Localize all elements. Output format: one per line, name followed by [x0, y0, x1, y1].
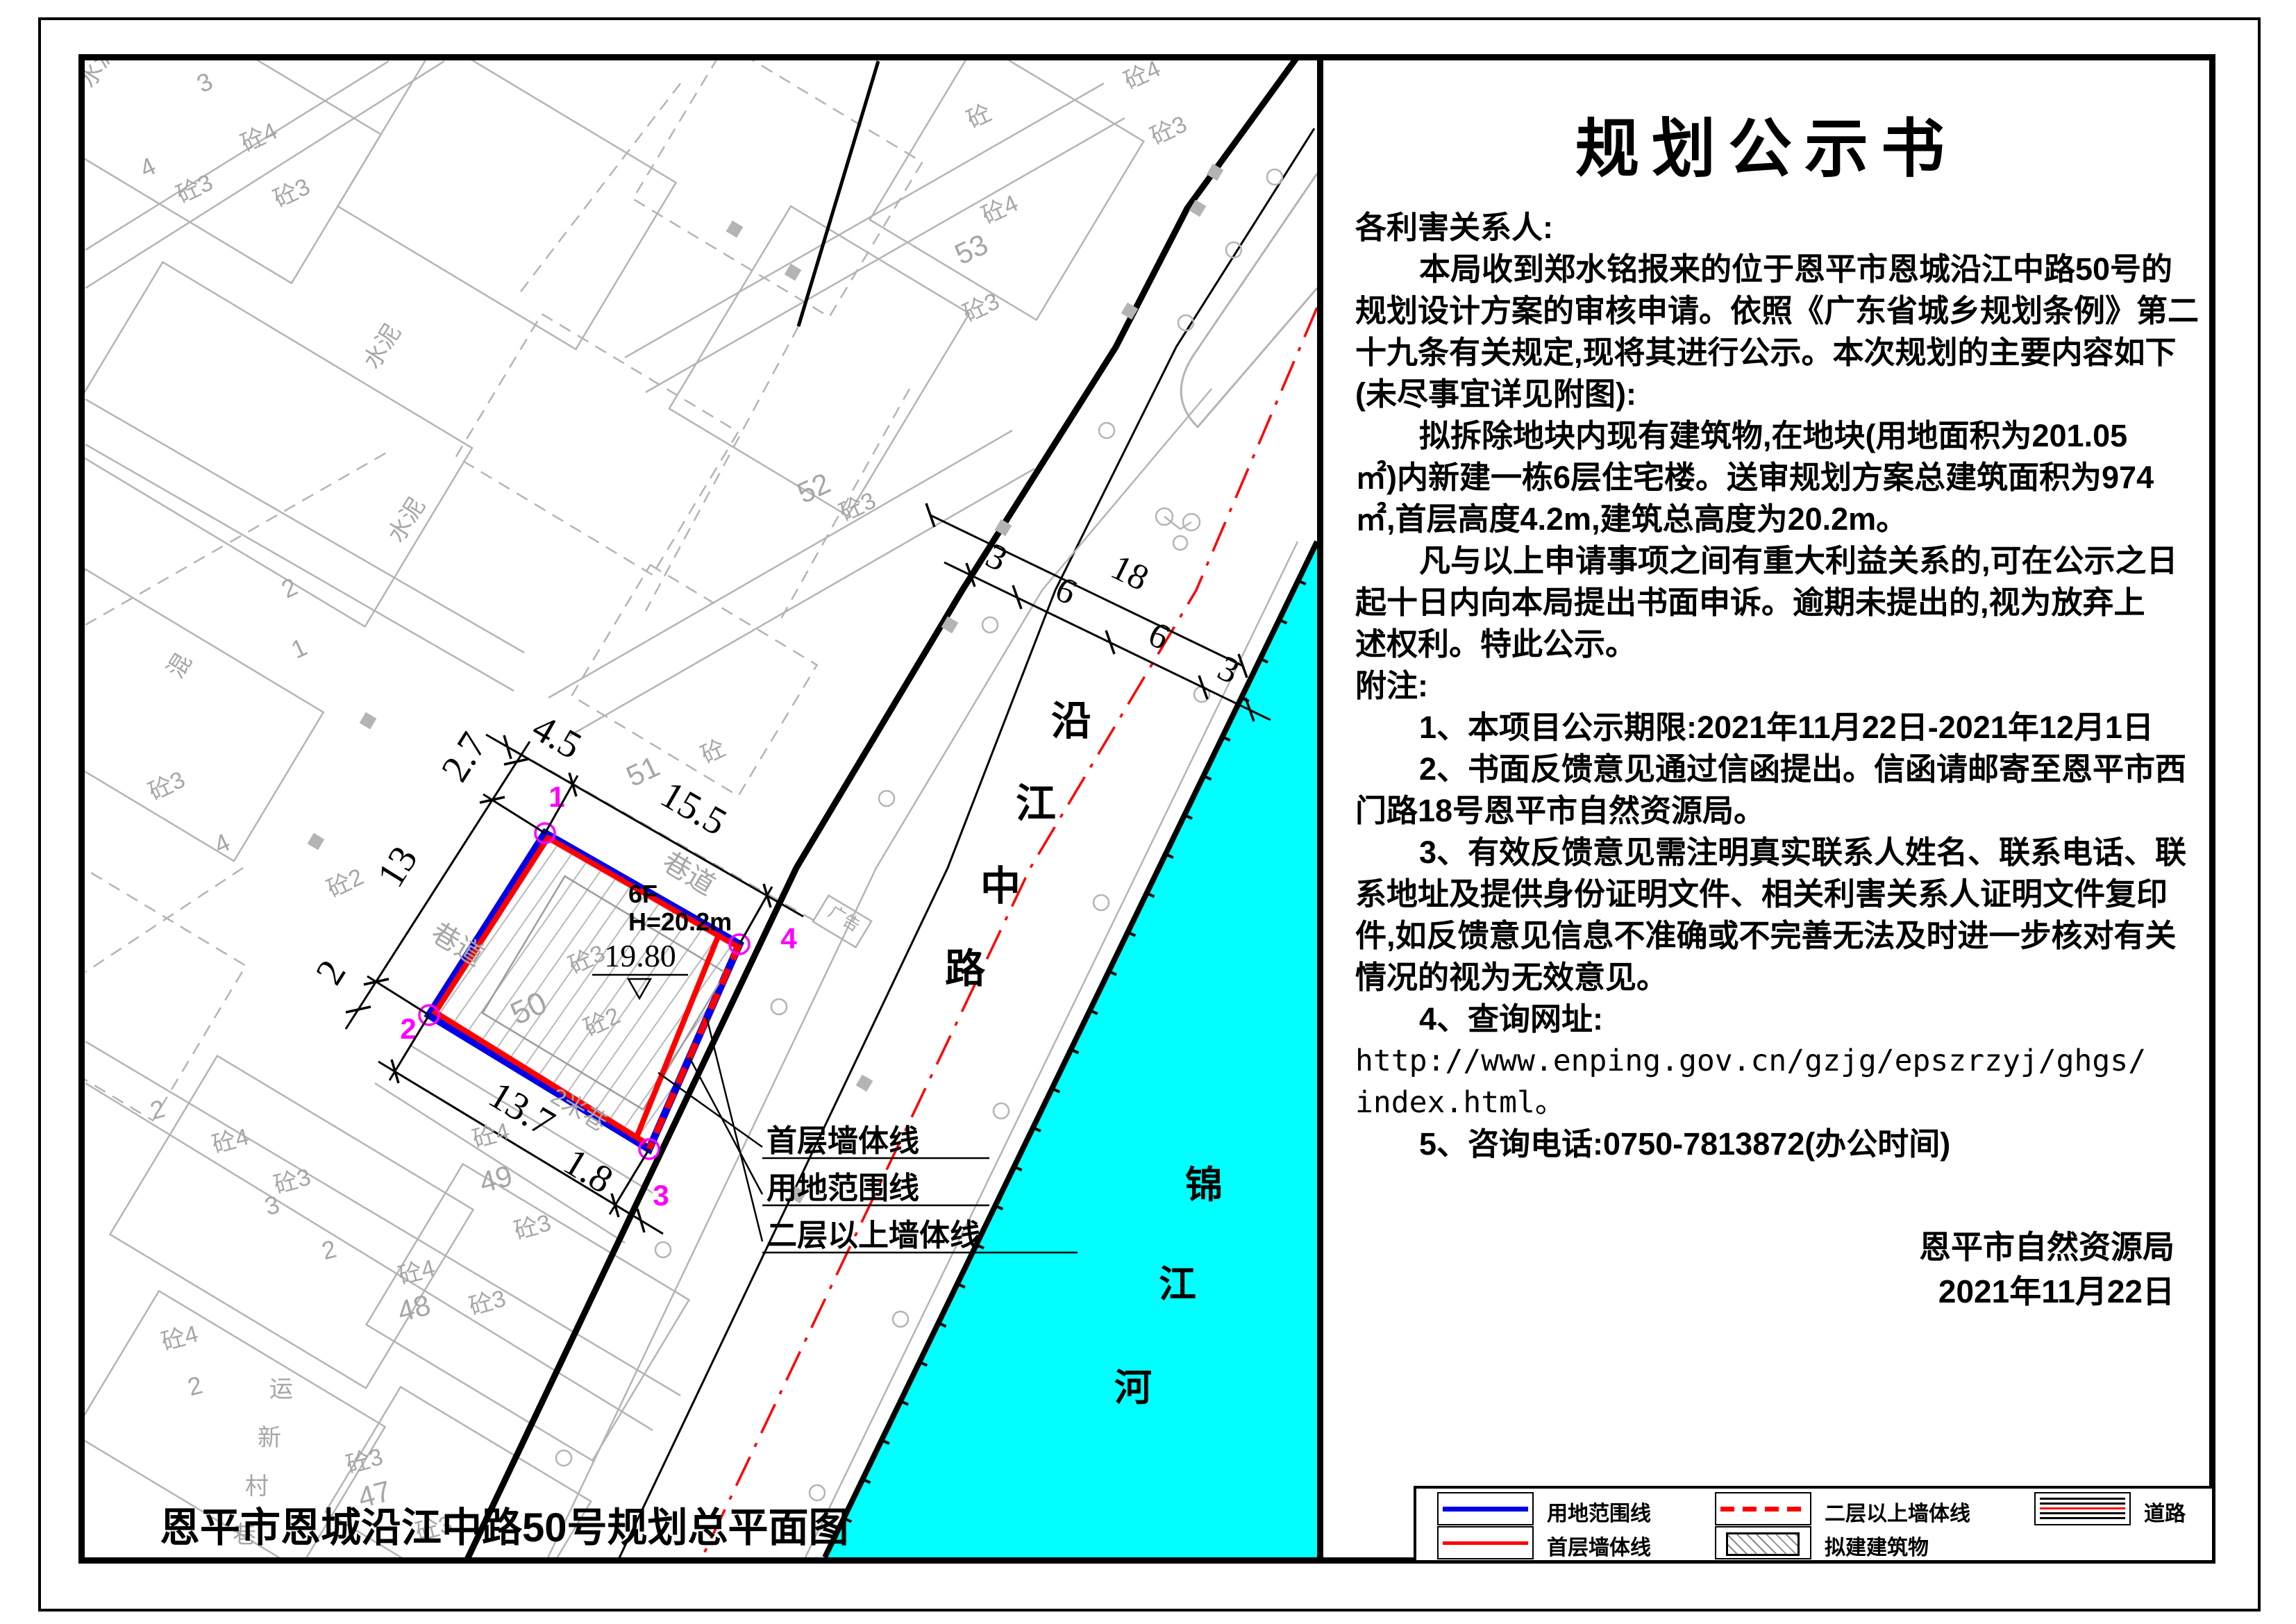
cadastral-label: 砼 — [697, 735, 730, 769]
cadastral-label: 混 — [162, 649, 197, 683]
body-line: 凡与以上申请事项之间有重大利益关系的,可在公示之日 — [1355, 540, 2201, 582]
dim-tick — [504, 735, 511, 759]
svg-text:沿: 沿 — [1051, 698, 1091, 744]
road-name: 沿 江 中 路 — [945, 698, 1091, 991]
tree-circle-icon — [1099, 423, 1114, 438]
query-url: index.html。 — [1355, 1082, 2201, 1123]
tree-circle-icon — [810, 1485, 825, 1500]
cadastral-label: 砼3 — [959, 288, 1003, 328]
legend-label: 拟建建筑物 — [1825, 1530, 1929, 1561]
legend: 用地范围线 二层以上墙体线 道路 首层墙体线 拟建建筑物 — [1414, 1486, 2212, 1560]
cadastral-label: 2 — [185, 1371, 206, 1402]
cadastral-label: 巷道 — [657, 846, 720, 901]
plan-title: 恩平市恩城沿江中路50号规划总平面图 — [160, 1505, 849, 1550]
cadastral-label: 砼3 — [512, 1209, 554, 1244]
cadastral-label: 砼4 — [978, 190, 1022, 230]
streetlight-icon — [1156, 508, 1200, 550]
cadastral-label: 砼4 — [159, 1321, 201, 1355]
body-line: 4、查询网址: — [1355, 998, 2201, 1040]
building-floors-label: 6F — [628, 880, 657, 908]
legend-label: 道路 — [2144, 1496, 2186, 1527]
legend-label: 首层墙体线 — [1547, 1530, 1651, 1561]
svg-text:中: 中 — [980, 864, 1021, 909]
cadastral-label: 水泥 — [85, 60, 121, 92]
cadastral-label: 新 — [258, 1425, 281, 1451]
cadastral-label: 砼4 — [396, 1255, 438, 1289]
tree-circle-icon — [771, 999, 787, 1014]
notes-header: 附注: — [1355, 665, 2201, 707]
body-line: 拟拆除地块内现有建筑物,在地块(用地面积为201.05 — [1355, 415, 2201, 457]
tree-circle-icon — [893, 1312, 908, 1327]
callout-labels: 首层墙体线 用地范围线 二层以上墙体线 — [766, 1124, 980, 1253]
svg-text:3: 3 — [653, 1179, 669, 1212]
tree-circle-icon — [556, 1450, 571, 1466]
tree-circle-icon — [982, 617, 998, 633]
site-boundary-swatch-icon — [1437, 1492, 1534, 1525]
svg-text:用地范围线: 用地范围线 — [766, 1171, 919, 1205]
road-swatch-icon — [2034, 1492, 2131, 1525]
body-line: 门路18号恩平市自然资源局。 — [1355, 790, 2201, 832]
tree-circle-icon — [1267, 169, 1282, 185]
body-line: ㎡)内新建一栋6层住宅楼。送审规划方案总建筑面积为974 — [1355, 457, 2201, 499]
gate-mark — [726, 221, 744, 238]
cadastral-label: 4 — [135, 151, 160, 183]
svg-text:3: 3 — [1212, 648, 1245, 692]
svg-text:15.5: 15.5 — [653, 773, 734, 844]
query-url: http://www.enping.gov.cn/gzjg/epszrzyj/g… — [1355, 1040, 2201, 1082]
svg-text:二层以上墙体线: 二层以上墙体线 — [766, 1219, 980, 1253]
cadastral-label: 51 — [621, 750, 664, 793]
tree-circle-icon — [1093, 895, 1109, 910]
svg-text:13: 13 — [369, 839, 426, 894]
cadastral-label: 砼3 — [1146, 111, 1191, 151]
river-name-char: 河 — [1114, 1367, 1152, 1409]
legend-label: 二层以上墙体线 — [1825, 1496, 1970, 1527]
body-line: 2、书面反馈意见通过信函提出。信函请邮寄至恩平市西 — [1355, 748, 2201, 790]
cadastral-label: 3 — [192, 67, 217, 99]
gate-mark — [785, 264, 802, 281]
body-line: (未尽事宜详见附图): — [1355, 374, 2201, 415]
cadastral-label: 1 — [287, 633, 311, 664]
body-line: 本局收到郑水铭报来的位于恩平市恩城沿江中路50号的 — [1355, 249, 2201, 290]
cadastral-label: 水泥 — [359, 319, 406, 374]
cadastral-label: 砼4 — [470, 1118, 512, 1153]
svg-text:首层墙体线: 首层墙体线 — [766, 1124, 919, 1158]
gate-mark — [360, 712, 377, 730]
cadastral-label: 运 — [269, 1376, 293, 1403]
cadastral-label: 砼3 — [172, 169, 217, 209]
panel-divider — [1317, 60, 1323, 1557]
body-line: 起十日内向本局提出书面申诉。逾期未提出的,视为放弃上 — [1355, 582, 2201, 623]
cadastral-label: 4 — [210, 828, 234, 860]
cadastral-label: 砼2 — [323, 864, 367, 903]
tree-circle-icon — [655, 1242, 671, 1257]
body-line: 十九条有关规定,现将其进行公示。本次规划的主要内容如下 — [1355, 332, 2201, 374]
body-line: 5、咨询电话:0750-7813872(办公时间) — [1355, 1123, 2201, 1165]
notice-body: 各利害关系人: 本局收到郑水铭报来的位于恩平市恩城沿江中路50号的 规划设计方案… — [1355, 207, 2201, 1165]
cadastral-label: 53 — [950, 228, 993, 271]
svg-text:18: 18 — [1105, 547, 1155, 598]
building-height-label: H=20.2m — [628, 907, 732, 936]
dim-tick — [637, 1209, 644, 1232]
dim-tick — [926, 503, 935, 527]
cadastral-label: 砼3 — [467, 1285, 509, 1320]
first-floor-wall-swatch-icon — [1437, 1526, 1534, 1559]
cadastral-label: 砼3 — [144, 767, 189, 806]
cadastral-label: 2 — [277, 572, 301, 604]
cadastral-label: 砼4 — [210, 1123, 252, 1158]
legend-label: 用地范围线 — [1547, 1496, 1651, 1527]
upper-wall-swatch-icon — [1715, 1492, 1811, 1525]
body-line: 述权利。特此公示。 — [1355, 623, 2201, 665]
site-plan-map: 锦 江 河 3 6 18 6 3 沿 江 中 路 — [85, 60, 1317, 1557]
body-line: ㎡,首层高度4.2m,建筑总高度为20.2m。 — [1355, 499, 2201, 540]
tree-circle-icon — [994, 1103, 1009, 1119]
svg-text:江: 江 — [1016, 781, 1056, 826]
svg-text:2: 2 — [308, 953, 354, 992]
tree-circle-icon — [879, 791, 894, 806]
issuer-signature: 恩平市自然资源局 — [1355, 1222, 2175, 1268]
cadastral-label: 水泥 — [383, 493, 430, 547]
cadastral-label: 砼4 — [1120, 60, 1164, 94]
svg-text:19.80: 19.80 — [604, 938, 676, 973]
body-line: 系地址及提供身份证明文件、相关利害关系人证明文件复印 — [1355, 873, 2201, 915]
cadastral-label: 砼3 — [344, 1443, 386, 1478]
cadastral-label: 砼 — [963, 100, 996, 134]
river-name-char: 锦 — [1185, 1164, 1223, 1206]
cadastral-label: 52 — [792, 467, 835, 510]
svg-text:4.5: 4.5 — [525, 706, 589, 768]
salutation: 各利害关系人: — [1355, 207, 2201, 249]
gate-mark — [856, 1075, 873, 1092]
notice-title: 规划公示书 — [1323, 97, 2209, 190]
issue-date: 2021年11月22日 — [1355, 1266, 2175, 1312]
cadastral-label: 砼3 — [835, 487, 880, 527]
cadastral-label: 48 — [394, 1288, 434, 1328]
body-line: 规划设计方案的审核申请。依照《广东省城乡规划条例》第二 — [1355, 290, 2201, 332]
cadastral-label: 2 — [147, 1094, 168, 1125]
svg-text:1: 1 — [548, 780, 564, 813]
cadastral-label: 砼3 — [269, 174, 314, 213]
gate-mark — [308, 833, 325, 851]
svg-text:1.8: 1.8 — [556, 1140, 620, 1202]
svg-text:路: 路 — [945, 946, 986, 991]
body-line: 1、本项目公示期限:2021年11月22日-2021年12月1日 — [1355, 707, 2201, 748]
planning-notice-page: 锦 江 河 3 6 18 6 3 沿 江 中 路 — [0, 0, 2296, 1624]
cadastral-label: 砼3 — [271, 1164, 314, 1198]
cadastral-label: 2 — [319, 1234, 340, 1266]
body-line: 件,如反馈意见信息不准确或不完善无法及时进一步核对有关 — [1355, 915, 2201, 957]
river-name-char: 江 — [1159, 1264, 1196, 1305]
cadastral-label: 村 — [245, 1473, 269, 1500]
svg-text:4: 4 — [780, 922, 797, 955]
body-line: 3、有效反馈意见需注明真实联系人姓名、联系电话、联 — [1355, 832, 2201, 873]
body-line: 情况的视为无效意见。 — [1355, 957, 2201, 998]
proposed-building-swatch-icon — [1715, 1526, 1811, 1559]
